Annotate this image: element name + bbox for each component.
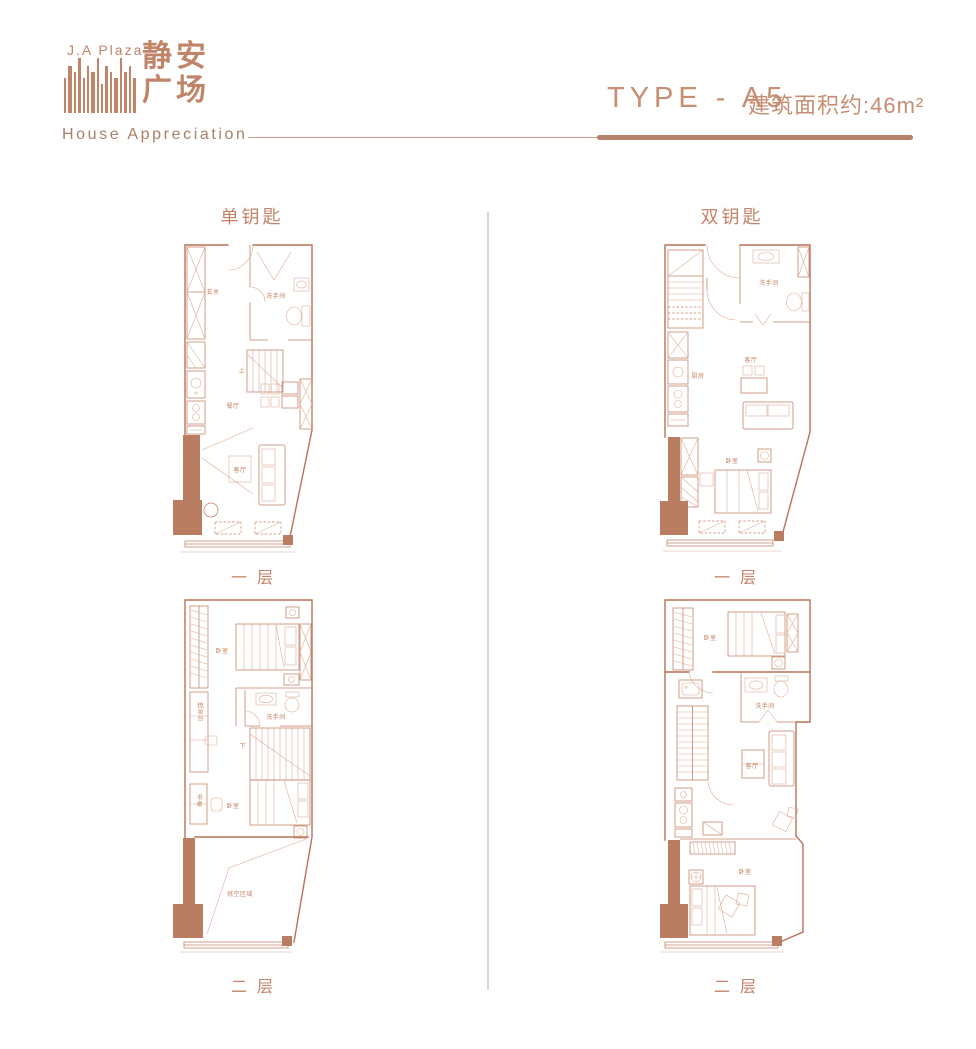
brand-en-text: J.A Plaza	[67, 42, 143, 58]
p4-bathroom	[679, 676, 788, 698]
p3-window	[180, 942, 292, 952]
p2-stairs	[668, 250, 703, 328]
p2-room-label-bedroom: 卧室	[725, 457, 738, 465]
floorplan-single-key-level2: 卧室 洗手间 梳妆台 下 书桌 卧室 挑空区域	[172, 598, 330, 964]
floorplan-single-key-level1: 玄关 洗手间 上 餐厅 客厅	[173, 242, 328, 557]
p4-kitchen	[675, 788, 722, 837]
p4-columns	[660, 840, 782, 946]
p4-room-label-bedroom2: 卧室	[738, 868, 751, 876]
p2-room-label-bathroom: 洗手间	[759, 279, 779, 287]
brand-cn-line1: 静安	[142, 40, 210, 74]
p2-room-label-living: 客厅	[744, 356, 757, 364]
p3-bathroom	[256, 692, 299, 712]
p4-room-label-living: 客厅	[745, 762, 758, 770]
floor-label-double-level1: 一层	[675, 564, 795, 588]
p3-dressing	[190, 692, 217, 772]
tagline-text: House Appreciation	[62, 126, 248, 144]
p4-bedroom-bottom	[689, 842, 755, 935]
p4-stairs	[677, 706, 734, 805]
center-divider-line	[487, 212, 489, 990]
floorplan-double-key-level2: 卧室 洗手间 客厅 卧室	[655, 598, 818, 964]
p3-room-label-desk: 书桌	[195, 793, 202, 808]
p4-room-label-bathroom: 洗手间	[755, 702, 775, 710]
built-area-text: 建筑面积约:46m²	[748, 88, 924, 120]
p4-living	[742, 731, 798, 832]
p3-bedroom-bottom	[190, 780, 310, 838]
brand-barcode-logo-icon	[64, 58, 136, 113]
p3-stairs	[250, 728, 310, 780]
p1-room-label-bathroom: 洗手间	[266, 292, 286, 300]
section-title-single-key: 单钥匙	[192, 203, 312, 229]
p1-room-label-entrance: 玄关	[206, 288, 219, 296]
p2-kitchen	[668, 332, 688, 426]
p3-room-label-bedroom2: 卧室	[226, 802, 239, 810]
p3-room-label-bathroom: 洗手间	[266, 713, 286, 721]
p3-room-label-dressing: 梳妆台	[196, 701, 203, 722]
p3-void	[207, 839, 306, 934]
p1-bathroom	[257, 252, 310, 326]
p3-room-label-bedroom1: 卧室	[215, 647, 228, 655]
p1-stairs	[247, 350, 283, 392]
p1-dining-set	[261, 379, 312, 429]
p2-living	[741, 366, 793, 462]
p4-walls	[665, 600, 810, 942]
p2-room-label-kitchen: 厨房	[691, 372, 704, 380]
p2-labels: 洗手间 厨房 客厅 卧室	[691, 279, 778, 465]
p1-labels: 玄关 洗手间 上 餐厅 客厅	[206, 288, 285, 474]
header-rule-thick	[597, 135, 913, 140]
p4-room-label-bedroom1: 卧室	[703, 634, 716, 642]
brand-cn-logotype: 静安 广场	[142, 40, 210, 108]
p2-bathroom	[753, 247, 809, 311]
p3-stairs-down-label: 下	[240, 743, 247, 750]
p2-columns	[660, 437, 784, 541]
p3-bedroom-top	[190, 606, 311, 688]
p3-walls	[185, 600, 312, 942]
brand-cn-line2: 广场	[142, 74, 210, 108]
p4-window	[661, 942, 783, 952]
p1-left-cabinets	[187, 247, 205, 434]
floorplan-double-key-level1: 洗手间 厨房 客厅 卧室	[655, 242, 813, 557]
p4-bedroom-top	[673, 608, 798, 670]
p1-stairs-up-label: 上	[239, 367, 246, 375]
header-rule-thin	[248, 137, 597, 138]
p2-bedroom	[681, 438, 771, 513]
section-title-double-key: 双钥匙	[672, 203, 792, 229]
floor-label-single-level2: 二层	[192, 973, 312, 997]
floor-label-double-level2: 二层	[675, 973, 795, 997]
p1-room-label-living: 客厅	[233, 466, 246, 474]
p1-room-label-dining: 餐厅	[226, 402, 239, 410]
p1-walls	[185, 245, 312, 537]
p3-room-label-void: 挑空区域	[227, 890, 253, 898]
p3-labels: 卧室 洗手间 梳妆台 下 书桌 卧室 挑空区域	[195, 647, 286, 898]
floor-label-single-level1: 一层	[192, 564, 312, 588]
floorplan-poster: J.A Plaza 静安 广场 House Appreciation TYPE …	[0, 0, 976, 1049]
